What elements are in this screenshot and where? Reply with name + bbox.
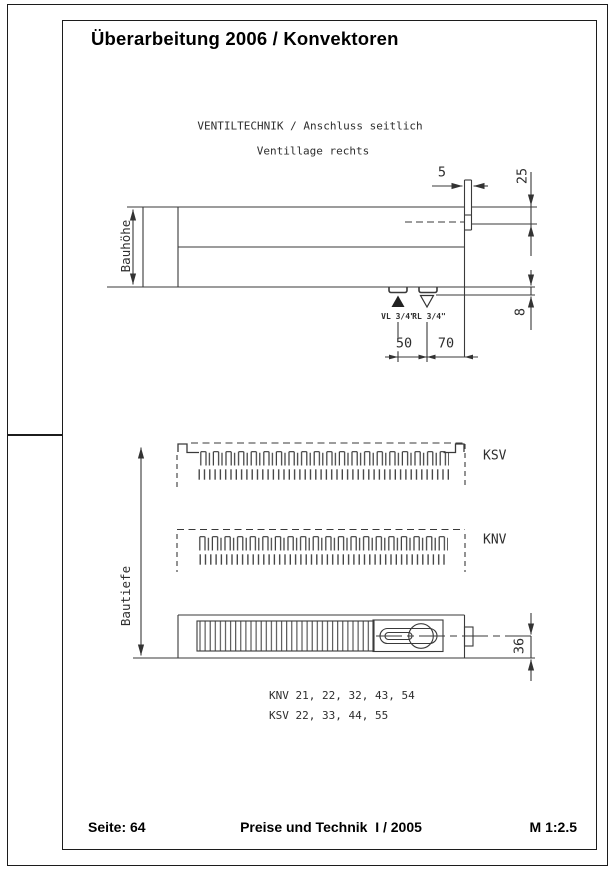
rl-connection-label: RL 3/4" <box>412 313 446 321</box>
vl-connection-label: VL 3/4" <box>381 313 415 321</box>
dim-stub-height-label: 8 <box>514 308 528 316</box>
dim-70-label: 70 <box>436 337 456 351</box>
knv-view-label: KNV <box>483 534 506 547</box>
mounting-tab-detail <box>465 180 472 230</box>
dim-tab-width-label: 5 <box>438 166 446 180</box>
ksv-grille-top-view <box>177 443 465 488</box>
model-line-ksv: KSV 22, 33, 44, 55 <box>269 710 388 721</box>
bautiefe-label: Bautiefe <box>120 566 133 626</box>
technical-drawing-canvas <box>0 0 616 872</box>
footer-publication: Preise und Technik I / 2005 <box>240 820 422 834</box>
dim-valve-height-label: 36 <box>513 638 527 654</box>
dim-tab-height-label: 25 <box>516 168 530 184</box>
catalog-page: Überarbeitung 2006 / Konvektoren VENTILT… <box>0 0 616 872</box>
rl-return-triangle <box>421 296 434 308</box>
model-line-knv: KNV 21, 22, 32, 43, 54 <box>269 690 415 701</box>
side-view-drawing <box>107 172 537 362</box>
vl-flow-triangle <box>392 296 405 308</box>
dim-50-label: 50 <box>394 337 414 351</box>
footer-scale: M 1:2.5 <box>530 820 577 834</box>
pipe-stubs <box>389 287 437 293</box>
valve-assembly <box>373 620 533 652</box>
bauhoehe-label: Bauhöhe <box>120 220 133 273</box>
knv-grille-top-view <box>177 530 465 573</box>
footer-page-number: Seite: 64 <box>88 820 146 834</box>
ksv-view-label: KSV <box>483 450 506 463</box>
